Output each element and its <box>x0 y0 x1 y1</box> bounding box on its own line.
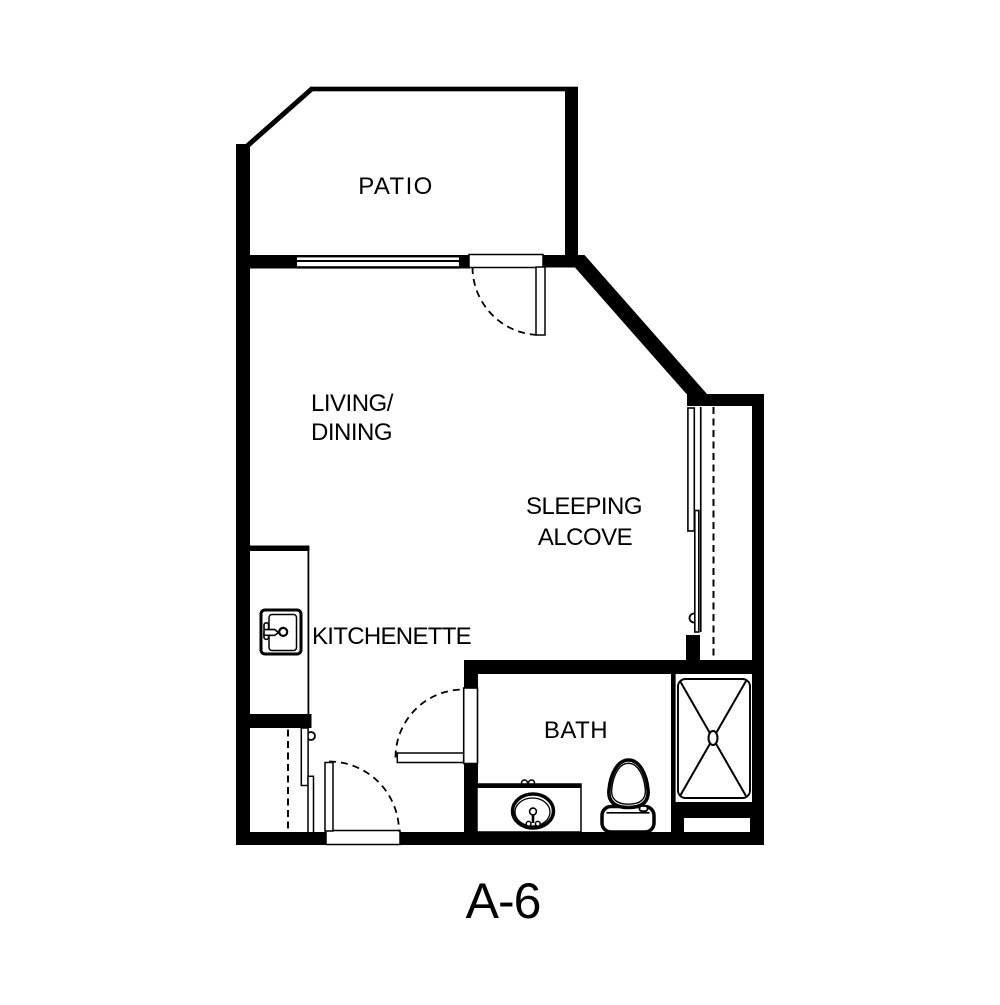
svg-text:LIVING/: LIVING/ <box>311 390 394 417</box>
svg-text:DINING: DINING <box>311 419 392 446</box>
svg-text:BATH: BATH <box>544 717 608 744</box>
svg-text:ALCOVE: ALCOVE <box>538 524 632 551</box>
svg-text:SLEEPING: SLEEPING <box>526 493 642 520</box>
svg-text:PATIO: PATIO <box>358 173 433 200</box>
svg-text:A-6: A-6 <box>466 873 541 929</box>
svg-text:KITCHENETTE: KITCHENETTE <box>312 623 471 650</box>
